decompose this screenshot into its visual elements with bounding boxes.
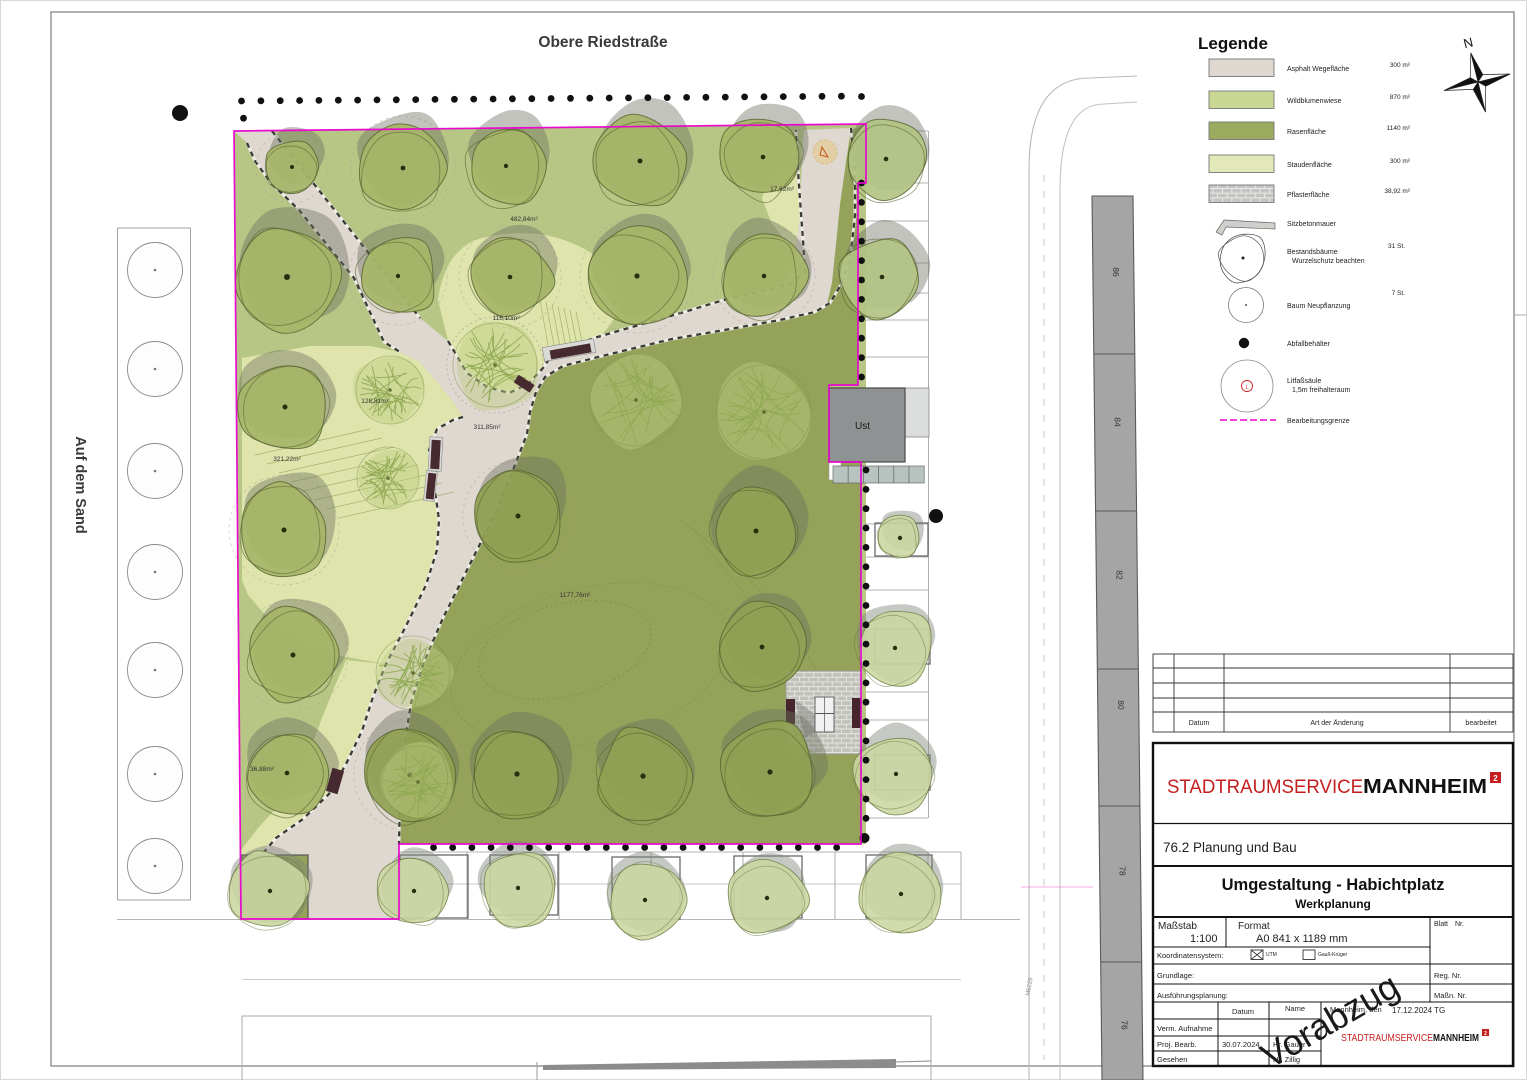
svg-text:Ausführungsplanung:: Ausführungsplanung: bbox=[1157, 991, 1228, 1000]
svg-text:36,88m²: 36,88m² bbox=[250, 766, 275, 773]
svg-text:MANNHEIM: MANNHEIM bbox=[1363, 775, 1487, 798]
svg-text:Sitzbetonmauer: Sitzbetonmauer bbox=[1287, 221, 1337, 228]
svg-text:Maßn. Nr.: Maßn. Nr. bbox=[1434, 991, 1467, 1000]
svg-text:Reg. Nr.: Reg. Nr. bbox=[1434, 971, 1462, 980]
svg-text:MANNHEIM: MANNHEIM bbox=[1433, 1032, 1479, 1044]
svg-text:Legende: Legende bbox=[1198, 34, 1268, 53]
svg-text:UTM: UTM bbox=[1266, 952, 1277, 958]
svg-text:1177,76m²: 1177,76m² bbox=[560, 592, 591, 599]
svg-text:128,81m²: 128,81m² bbox=[361, 398, 389, 405]
svg-text:bearbeitet: bearbeitet bbox=[1465, 720, 1496, 727]
svg-text:1140 m²: 1140 m² bbox=[1387, 125, 1411, 132]
svg-text:Grundlage:: Grundlage: bbox=[1157, 971, 1194, 980]
svg-text:STADTRAUMSERVICE: STADTRAUMSERVICE bbox=[1341, 1033, 1433, 1044]
svg-text:Werkplanung: Werkplanung bbox=[1295, 897, 1371, 911]
svg-text:STADTRAUMSERVICE: STADTRAUMSERVICE bbox=[1167, 776, 1363, 798]
svg-text:2: 2 bbox=[1493, 774, 1498, 783]
svg-text:Pflasterfläche: Pflasterfläche bbox=[1287, 192, 1330, 199]
svg-text:Maßstab: Maßstab bbox=[1158, 921, 1197, 932]
svg-text:Abfallbehälter: Abfallbehälter bbox=[1287, 341, 1330, 348]
svg-text:A0 841 x 1189 mm: A0 841 x 1189 mm bbox=[1256, 933, 1348, 945]
svg-text:Obere Riedstraße: Obere Riedstraße bbox=[538, 34, 668, 51]
svg-text:2: 2 bbox=[1484, 1031, 1487, 1037]
svg-text:Format: Format bbox=[1238, 921, 1270, 932]
svg-text:Rasenfläche: Rasenfläche bbox=[1287, 129, 1326, 136]
svg-text:Wurzelschutz beachten: Wurzelschutz beachten bbox=[1292, 258, 1365, 265]
svg-text:17,62m²: 17,62m² bbox=[770, 186, 795, 193]
svg-text:Auf dem Sand: Auf dem Sand bbox=[72, 436, 88, 533]
svg-text:17.12.2024 TG: 17.12.2024 TG bbox=[1392, 1006, 1445, 1015]
svg-text:Bestandsbäume: Bestandsbäume bbox=[1287, 249, 1338, 256]
svg-text:Bearbeitungsgrenze: Bearbeitungsgrenze bbox=[1287, 418, 1350, 425]
svg-text:Nr.: Nr. bbox=[1455, 921, 1464, 928]
svg-text:870 m²: 870 m² bbox=[1390, 94, 1411, 101]
svg-text:7 St.: 7 St. bbox=[1392, 290, 1406, 297]
svg-text:Proj. Bearb.: Proj. Bearb. bbox=[1157, 1040, 1197, 1049]
svg-text:76.2 Planung und Bau: 76.2 Planung und Bau bbox=[1163, 840, 1297, 855]
svg-text:80: 80 bbox=[1116, 700, 1126, 710]
svg-text:82: 82 bbox=[1114, 570, 1124, 580]
svg-text:Datum: Datum bbox=[1189, 720, 1210, 727]
svg-text:Art der Änderung: Art der Änderung bbox=[1310, 719, 1363, 727]
svg-text:Name: Name bbox=[1285, 1004, 1305, 1013]
svg-text:321,22m²: 321,22m² bbox=[273, 456, 301, 463]
svg-text:Staudenfläche: Staudenfläche bbox=[1287, 162, 1332, 169]
svg-text:Verm. Aufnahme: Verm. Aufnahme bbox=[1157, 1024, 1212, 1033]
svg-text:78: 78 bbox=[1118, 866, 1128, 876]
svg-text:86: 86 bbox=[1111, 267, 1121, 277]
svg-text:Litfaßsäule: Litfaßsäule bbox=[1287, 378, 1321, 385]
svg-text:1:100: 1:100 bbox=[1190, 933, 1218, 945]
svg-text:300 m²: 300 m² bbox=[1390, 158, 1411, 165]
svg-text:Koordinatensystem:: Koordinatensystem: bbox=[1157, 951, 1223, 960]
svg-text:1,5m freihalteraum: 1,5m freihalteraum bbox=[1292, 387, 1351, 394]
svg-text:Umgestaltung - Habichtplatz: Umgestaltung - Habichtplatz bbox=[1222, 876, 1445, 894]
svg-text:L: L bbox=[1245, 385, 1248, 391]
svg-text:Blatt: Blatt bbox=[1434, 921, 1448, 928]
svg-text:118,10m²: 118,10m² bbox=[493, 315, 521, 322]
svg-text:76: 76 bbox=[1119, 1020, 1129, 1030]
svg-text:Asphalt Wegefläche: Asphalt Wegefläche bbox=[1287, 66, 1349, 73]
svg-text:482,84m²: 482,84m² bbox=[510, 216, 538, 223]
svg-text:38,92 m²: 38,92 m² bbox=[1384, 188, 1410, 195]
svg-text:Baum Neupflanzung: Baum Neupflanzung bbox=[1287, 303, 1351, 310]
svg-text:Wildblumenwiese: Wildblumenwiese bbox=[1287, 98, 1342, 105]
svg-text:Gesehen: Gesehen bbox=[1157, 1055, 1187, 1064]
svg-text:300 m²: 300 m² bbox=[1390, 62, 1411, 69]
svg-text:Datum: Datum bbox=[1232, 1007, 1254, 1016]
svg-text:31 St.: 31 St. bbox=[1388, 243, 1405, 250]
svg-text:Gauß-Krüger: Gauß-Krüger bbox=[1318, 952, 1348, 958]
svg-text:311,85m²: 311,85m² bbox=[474, 424, 502, 431]
svg-text:84: 84 bbox=[1113, 417, 1123, 427]
svg-text:Ust: Ust bbox=[855, 421, 870, 432]
